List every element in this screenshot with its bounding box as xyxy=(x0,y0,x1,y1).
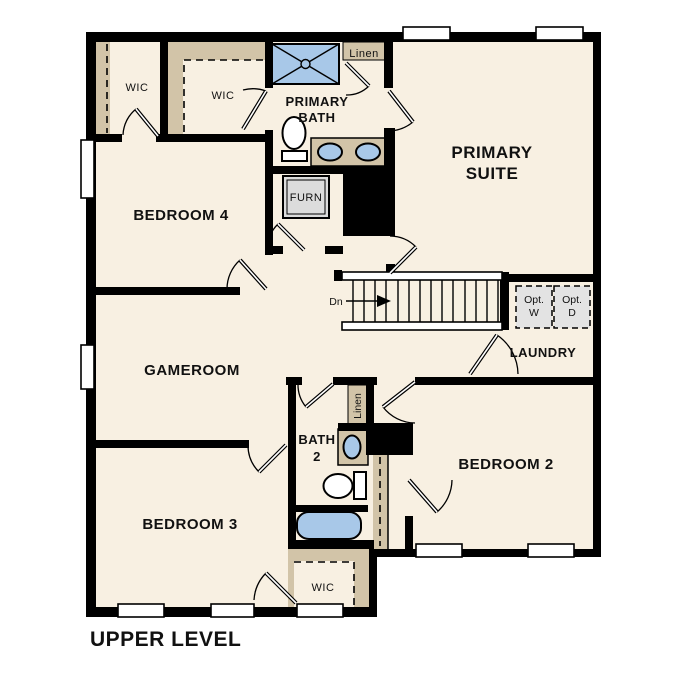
wall-outer-right xyxy=(593,32,601,557)
bathtub xyxy=(297,512,361,539)
opt-w-label-1: Opt. xyxy=(524,294,544,306)
vanity-sink-1 xyxy=(318,144,342,161)
shower xyxy=(272,44,339,84)
wic2-shelf-left xyxy=(168,42,183,134)
wall-laundry-top xyxy=(502,274,601,282)
wall-wic1-bottom-a xyxy=(96,134,122,142)
wall-suite-left-b xyxy=(384,128,395,168)
wic2-label: WIC xyxy=(212,90,235,102)
stairs-dn-label: Dn xyxy=(329,296,343,308)
primary-suite-label-2: SUITE xyxy=(466,164,519,183)
primary-suite-label-1: PRIMARY xyxy=(451,143,532,162)
gameroom-label: GAMEROOM xyxy=(144,362,240,379)
wall-outer-left xyxy=(86,32,96,617)
wall-bath2-left xyxy=(288,377,296,549)
bedroom4-label: BEDROOM 4 xyxy=(133,207,229,224)
linen-top-label: Linen xyxy=(349,48,378,60)
wall-bath2-right xyxy=(366,383,374,425)
window-gameroom-left xyxy=(81,345,94,389)
wall-suite-left-a xyxy=(384,42,393,88)
window-suite-top-1 xyxy=(403,27,450,40)
linen-mid-label: Linen xyxy=(352,393,364,419)
opt-d-label-1: Opt. xyxy=(562,294,582,306)
vanity-sink-2 xyxy=(356,144,380,161)
wall-b2closet-front xyxy=(405,516,413,549)
wall-step xyxy=(369,549,377,617)
bedroom3-label: BEDROOM 3 xyxy=(142,516,237,533)
primary-bath-label-1: PRIMARY xyxy=(286,94,349,109)
window-bedroom4-left xyxy=(81,140,94,198)
primary-toilet-tank xyxy=(282,151,307,161)
window-suite-top-2 xyxy=(536,27,583,40)
furn-label: FURN xyxy=(290,192,323,204)
primary-bath-label-2: BATH xyxy=(298,110,335,125)
floorplan-page: WIC WIC PRIMARY BATH Linen PRIMARY SUITE… xyxy=(0,0,687,687)
laundry-label: LAUNDRY xyxy=(510,345,577,360)
window-bedroom2-bottom-2 xyxy=(528,544,574,557)
window-bedroom3-bottom-2 xyxy=(211,604,254,617)
bath2-label-1: BATH xyxy=(298,432,335,447)
wic1-shelf xyxy=(96,42,110,134)
shower-drain xyxy=(301,60,310,69)
window-wic3-bottom xyxy=(297,604,343,617)
bath2-toilet-bowl xyxy=(324,474,353,498)
wic1-label: WIC xyxy=(126,82,149,94)
wall-furn-top xyxy=(273,166,343,174)
wall-bedroom4-bottom xyxy=(86,287,240,295)
bath2-toilet-tank xyxy=(354,472,366,499)
bath2-toilet xyxy=(324,472,367,499)
chase-black xyxy=(343,166,395,236)
bath2-sink xyxy=(344,436,361,459)
window-bedroom2-bottom-1 xyxy=(416,544,462,557)
wall-bedroom2-closet-chunk xyxy=(366,423,413,455)
wall-bath2-bottom xyxy=(288,540,374,549)
wall-hall-bottom-c xyxy=(415,377,601,385)
opt-d-label-2: D xyxy=(568,307,576,319)
window-bedroom3-bottom-1 xyxy=(118,604,164,617)
wic3-label: WIC xyxy=(312,582,335,594)
stair-rail-bottom xyxy=(342,322,502,330)
floorplan-drawing: WIC WIC PRIMARY BATH Linen PRIMARY SUITE… xyxy=(0,0,687,687)
wall-wic2-bottom xyxy=(168,134,267,142)
wall-stair-nub xyxy=(334,270,342,281)
bath2-label-2: 2 xyxy=(313,449,321,464)
wall-outer-top xyxy=(86,32,601,42)
wall-wic-divider xyxy=(160,42,168,142)
wall-tub-divider xyxy=(290,505,368,512)
plan-title: UPPER LEVEL xyxy=(90,628,241,651)
opt-w-label-2: W xyxy=(529,307,539,319)
stair-rail-top xyxy=(342,272,502,280)
wall-furn-bottom-b xyxy=(325,246,343,254)
wall-bedroom3-top xyxy=(86,440,249,448)
bedroom2-label: BEDROOM 2 xyxy=(458,456,553,473)
